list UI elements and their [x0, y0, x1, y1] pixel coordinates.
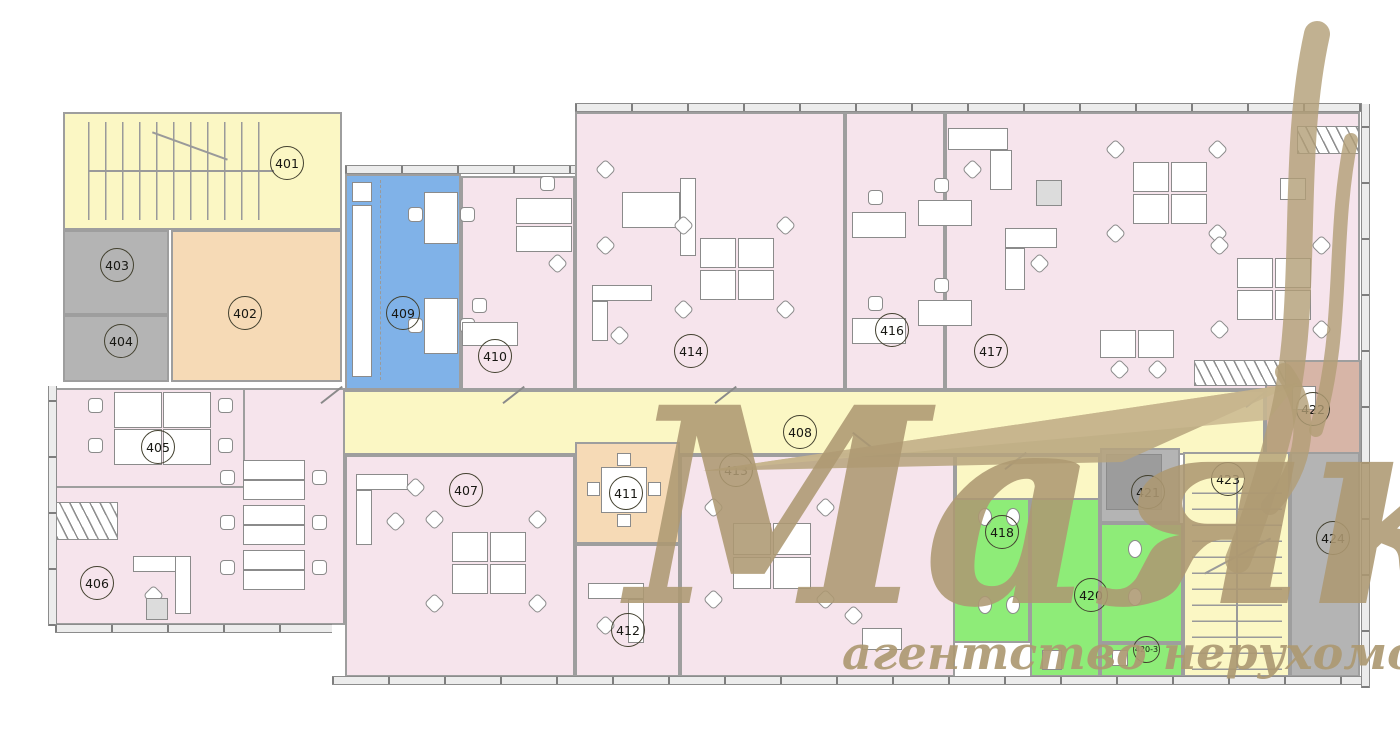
window-strip-top-2 [345, 165, 575, 174]
desk [490, 532, 526, 562]
room-label-413: 413 [719, 453, 753, 487]
room-label-414: 414 [674, 334, 708, 368]
stairs-401-landing [88, 170, 274, 172]
kitchen-sink [352, 182, 372, 202]
desk [1133, 162, 1169, 192]
room-label-423: 423 [1211, 462, 1245, 496]
desk [592, 301, 608, 341]
chair [218, 398, 233, 413]
table [424, 298, 458, 354]
desk [452, 564, 488, 594]
desk [592, 285, 652, 301]
desk [773, 523, 811, 555]
desk [1171, 194, 1207, 224]
desk [243, 505, 305, 525]
desk [1275, 290, 1311, 320]
desk [1133, 194, 1169, 224]
desk [852, 212, 906, 238]
room-label-405: 405 [141, 430, 175, 464]
chair [472, 298, 487, 313]
room-label-422: 422 [1296, 392, 1330, 426]
chair [648, 482, 661, 496]
room-label-418: 418 [985, 515, 1019, 549]
desk [1005, 228, 1057, 248]
desk [243, 480, 305, 500]
desk [738, 270, 774, 300]
desk [356, 490, 372, 545]
chair [218, 438, 233, 453]
room-408-corridor [245, 390, 1265, 455]
toilet [1128, 540, 1142, 558]
desk [990, 150, 1012, 190]
room-label-407: 407 [449, 473, 483, 507]
desk [948, 128, 1008, 150]
desk [738, 238, 774, 268]
desk [588, 583, 644, 599]
room-label-402: 402 [228, 296, 262, 330]
chair [408, 207, 423, 222]
chair [934, 178, 949, 193]
chair [868, 190, 883, 205]
window-strip-bottom-left [55, 624, 332, 633]
room-label-404: 404 [104, 324, 138, 358]
window-strip-right [1361, 104, 1370, 688]
room-420-stalls [1100, 523, 1183, 643]
desk [516, 198, 572, 224]
desk [1138, 330, 1174, 358]
chair [934, 278, 949, 293]
kitchen-counter [352, 205, 372, 377]
room-416 [845, 112, 945, 390]
table [424, 192, 458, 244]
desk [1005, 248, 1025, 290]
desk [163, 392, 211, 428]
room-label-410: 410 [478, 339, 512, 373]
desk [622, 192, 680, 228]
desk [243, 460, 305, 480]
chair [312, 560, 327, 575]
room-label-420: 420 [1074, 578, 1108, 612]
desk [918, 200, 972, 226]
desk [733, 557, 771, 589]
desk [700, 238, 736, 268]
room-label-401: 401 [270, 146, 304, 180]
sink [1112, 650, 1128, 666]
room-label-416: 416 [875, 313, 909, 347]
chair [868, 296, 883, 311]
desk [490, 564, 526, 594]
cabinet [1036, 180, 1062, 206]
desk [1171, 162, 1207, 192]
desk [1237, 290, 1273, 320]
stairs-423-rail [1236, 480, 1238, 668]
desk [773, 557, 811, 589]
room-label-406: 406 [80, 566, 114, 600]
room-label-403: 403 [100, 248, 134, 282]
toilet [1006, 596, 1020, 614]
floor-plan-canvas: 401 402 403 404 405 406 407 408 409 410 … [0, 0, 1400, 734]
room-label-420-3: 420-3 [1133, 636, 1160, 663]
toilet [1128, 588, 1142, 606]
chair [220, 515, 235, 530]
desk [1100, 330, 1136, 358]
room-label-424: 424 [1316, 521, 1350, 555]
window-strip-bottom [332, 676, 1362, 685]
room-label-409: 409 [386, 296, 420, 330]
hatch-radiator-left [56, 502, 118, 540]
chair [312, 515, 327, 530]
room-label-411: 411 [609, 476, 643, 510]
chair [312, 470, 327, 485]
room-label-421: 421 [1131, 475, 1165, 509]
room-label-417: 417 [974, 334, 1008, 368]
sink [1042, 650, 1062, 670]
cabinet [146, 598, 168, 620]
chair [617, 514, 631, 527]
chair [540, 176, 555, 191]
desk [700, 270, 736, 300]
desk [243, 570, 305, 590]
room-413 [680, 455, 955, 677]
desk [1275, 258, 1311, 288]
chair [587, 482, 600, 496]
window-strip-top [575, 103, 1362, 112]
desk [452, 532, 488, 562]
chair [220, 470, 235, 485]
room-label-412: 412 [611, 613, 645, 647]
desk [516, 226, 572, 252]
desk [243, 550, 305, 570]
cabinet [1280, 178, 1306, 200]
desk [862, 628, 902, 650]
desk [1237, 258, 1273, 288]
chair [88, 398, 103, 413]
desk [114, 392, 162, 428]
room-label-408: 408 [783, 415, 817, 449]
room-424 [1290, 452, 1360, 677]
hatch-shelf-right [1194, 360, 1286, 386]
chair [460, 207, 475, 222]
desk [918, 300, 972, 326]
hatch-shelf-top-right [1297, 126, 1359, 154]
corridor-branch [955, 455, 1100, 500]
desk [733, 523, 771, 555]
desk [356, 474, 408, 490]
chair [88, 438, 103, 453]
chair [617, 453, 631, 466]
desk [243, 525, 305, 545]
desk [175, 556, 191, 614]
kitchen-divider [380, 180, 381, 380]
toilet [978, 596, 992, 614]
chair [220, 560, 235, 575]
